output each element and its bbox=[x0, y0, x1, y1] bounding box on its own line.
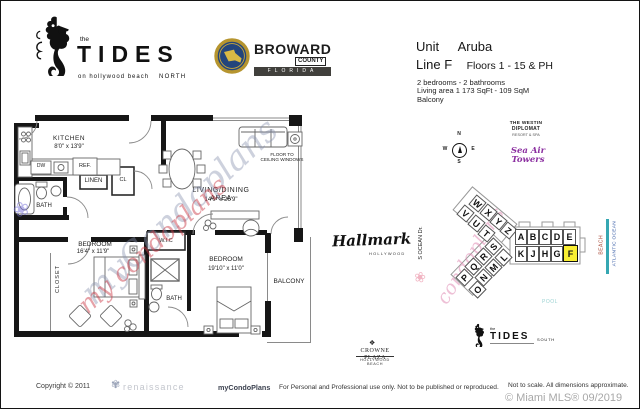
floorplan-drawing bbox=[1, 1, 640, 409]
room-label-linen: LINEN bbox=[81, 178, 106, 185]
footer-usage-note: For Personal and Professional use only. … bbox=[279, 384, 499, 391]
room-label-closet: CLOSET bbox=[55, 251, 61, 307]
pool-label: POOL bbox=[537, 300, 563, 306]
windows-note-line2: CEILING WINDOWS bbox=[257, 157, 307, 162]
footer-scale-note: Not to scale. All dimensions approximate… bbox=[508, 382, 629, 389]
shoreline bbox=[606, 219, 609, 274]
room-label-bath2: BATH bbox=[161, 296, 187, 303]
compass-s: S bbox=[453, 160, 465, 166]
landmark-westin-line2: DIPLOMAT bbox=[505, 127, 547, 133]
room-label-cl: CL bbox=[114, 177, 132, 183]
room-label-balcony: BALCONY bbox=[269, 278, 309, 285]
crowne-plaza-emblem-icon: ❖ bbox=[369, 339, 375, 347]
landmark-hallmark-sub: HOLLYWOOD bbox=[369, 252, 406, 256]
footer-brand: myCondoPlans bbox=[218, 384, 270, 392]
renaissance-flower-icon: ✾ bbox=[111, 378, 120, 391]
ocean-label: ATLANTIC OCEAN bbox=[612, 216, 617, 272]
footer-copyright: Copyright © 2011 bbox=[36, 383, 90, 391]
compass-n: N bbox=[453, 132, 465, 138]
compass-e: E bbox=[468, 147, 478, 153]
tides-south-name: TIDES bbox=[490, 331, 529, 342]
room-dims-kitchen: 8'0" x 13'9" bbox=[41, 144, 97, 151]
footer-renaissance-logo: renaissance bbox=[123, 383, 185, 393]
room-label-wic: W.I.C bbox=[151, 238, 181, 244]
tides-south-region: SOUTH bbox=[537, 337, 555, 342]
appliance-label-dw: DW bbox=[31, 164, 51, 170]
compass-icon bbox=[452, 143, 467, 158]
room-label-bath1: BATH bbox=[31, 203, 57, 210]
landmark-sea-air-towers: Sea Air Towers bbox=[493, 147, 563, 166]
room-label-bedroom2: BEDROOM bbox=[196, 256, 256, 263]
windows-note: FLOOR TO CEILING WINDOWS bbox=[257, 152, 307, 163]
landmark-crowne-plaza-sub: HOLLYWOOD BEACH bbox=[353, 358, 397, 366]
street-label-s-ocean-dr: S OCEAN Dr. bbox=[418, 215, 424, 271]
crowne-plaza-rule bbox=[356, 356, 394, 357]
landmark-hallmark: Hallmark bbox=[332, 231, 412, 250]
room-label-bedroom1: BEDROOM bbox=[65, 241, 125, 248]
tides-south-underline bbox=[490, 343, 534, 344]
compass-w: W bbox=[440, 147, 450, 153]
landmark-westin-line3: RESORT & SPA bbox=[505, 133, 547, 137]
building-outline bbox=[451, 187, 585, 295]
room-label-kitchen: KITCHEN bbox=[41, 135, 97, 142]
seahorse-south-icon bbox=[469, 323, 487, 347]
room-dims-bedroom1: 16'4" x 11'9" bbox=[63, 249, 123, 256]
room-dims-living: 14'0" x 26'9" bbox=[183, 197, 259, 204]
footer-mls-credit: © Miami MLS® 09/2019 bbox=[505, 392, 622, 404]
room-dims-bedroom2: 19'10" x 11'0" bbox=[194, 266, 258, 273]
floorplan-sheet: the TIDES on hollywood beachNORTH BROWAR… bbox=[0, 0, 640, 409]
appliance-label-ref: REF. bbox=[73, 163, 97, 169]
compass-needle bbox=[458, 146, 462, 153]
beach-label: BEACH bbox=[599, 227, 605, 263]
